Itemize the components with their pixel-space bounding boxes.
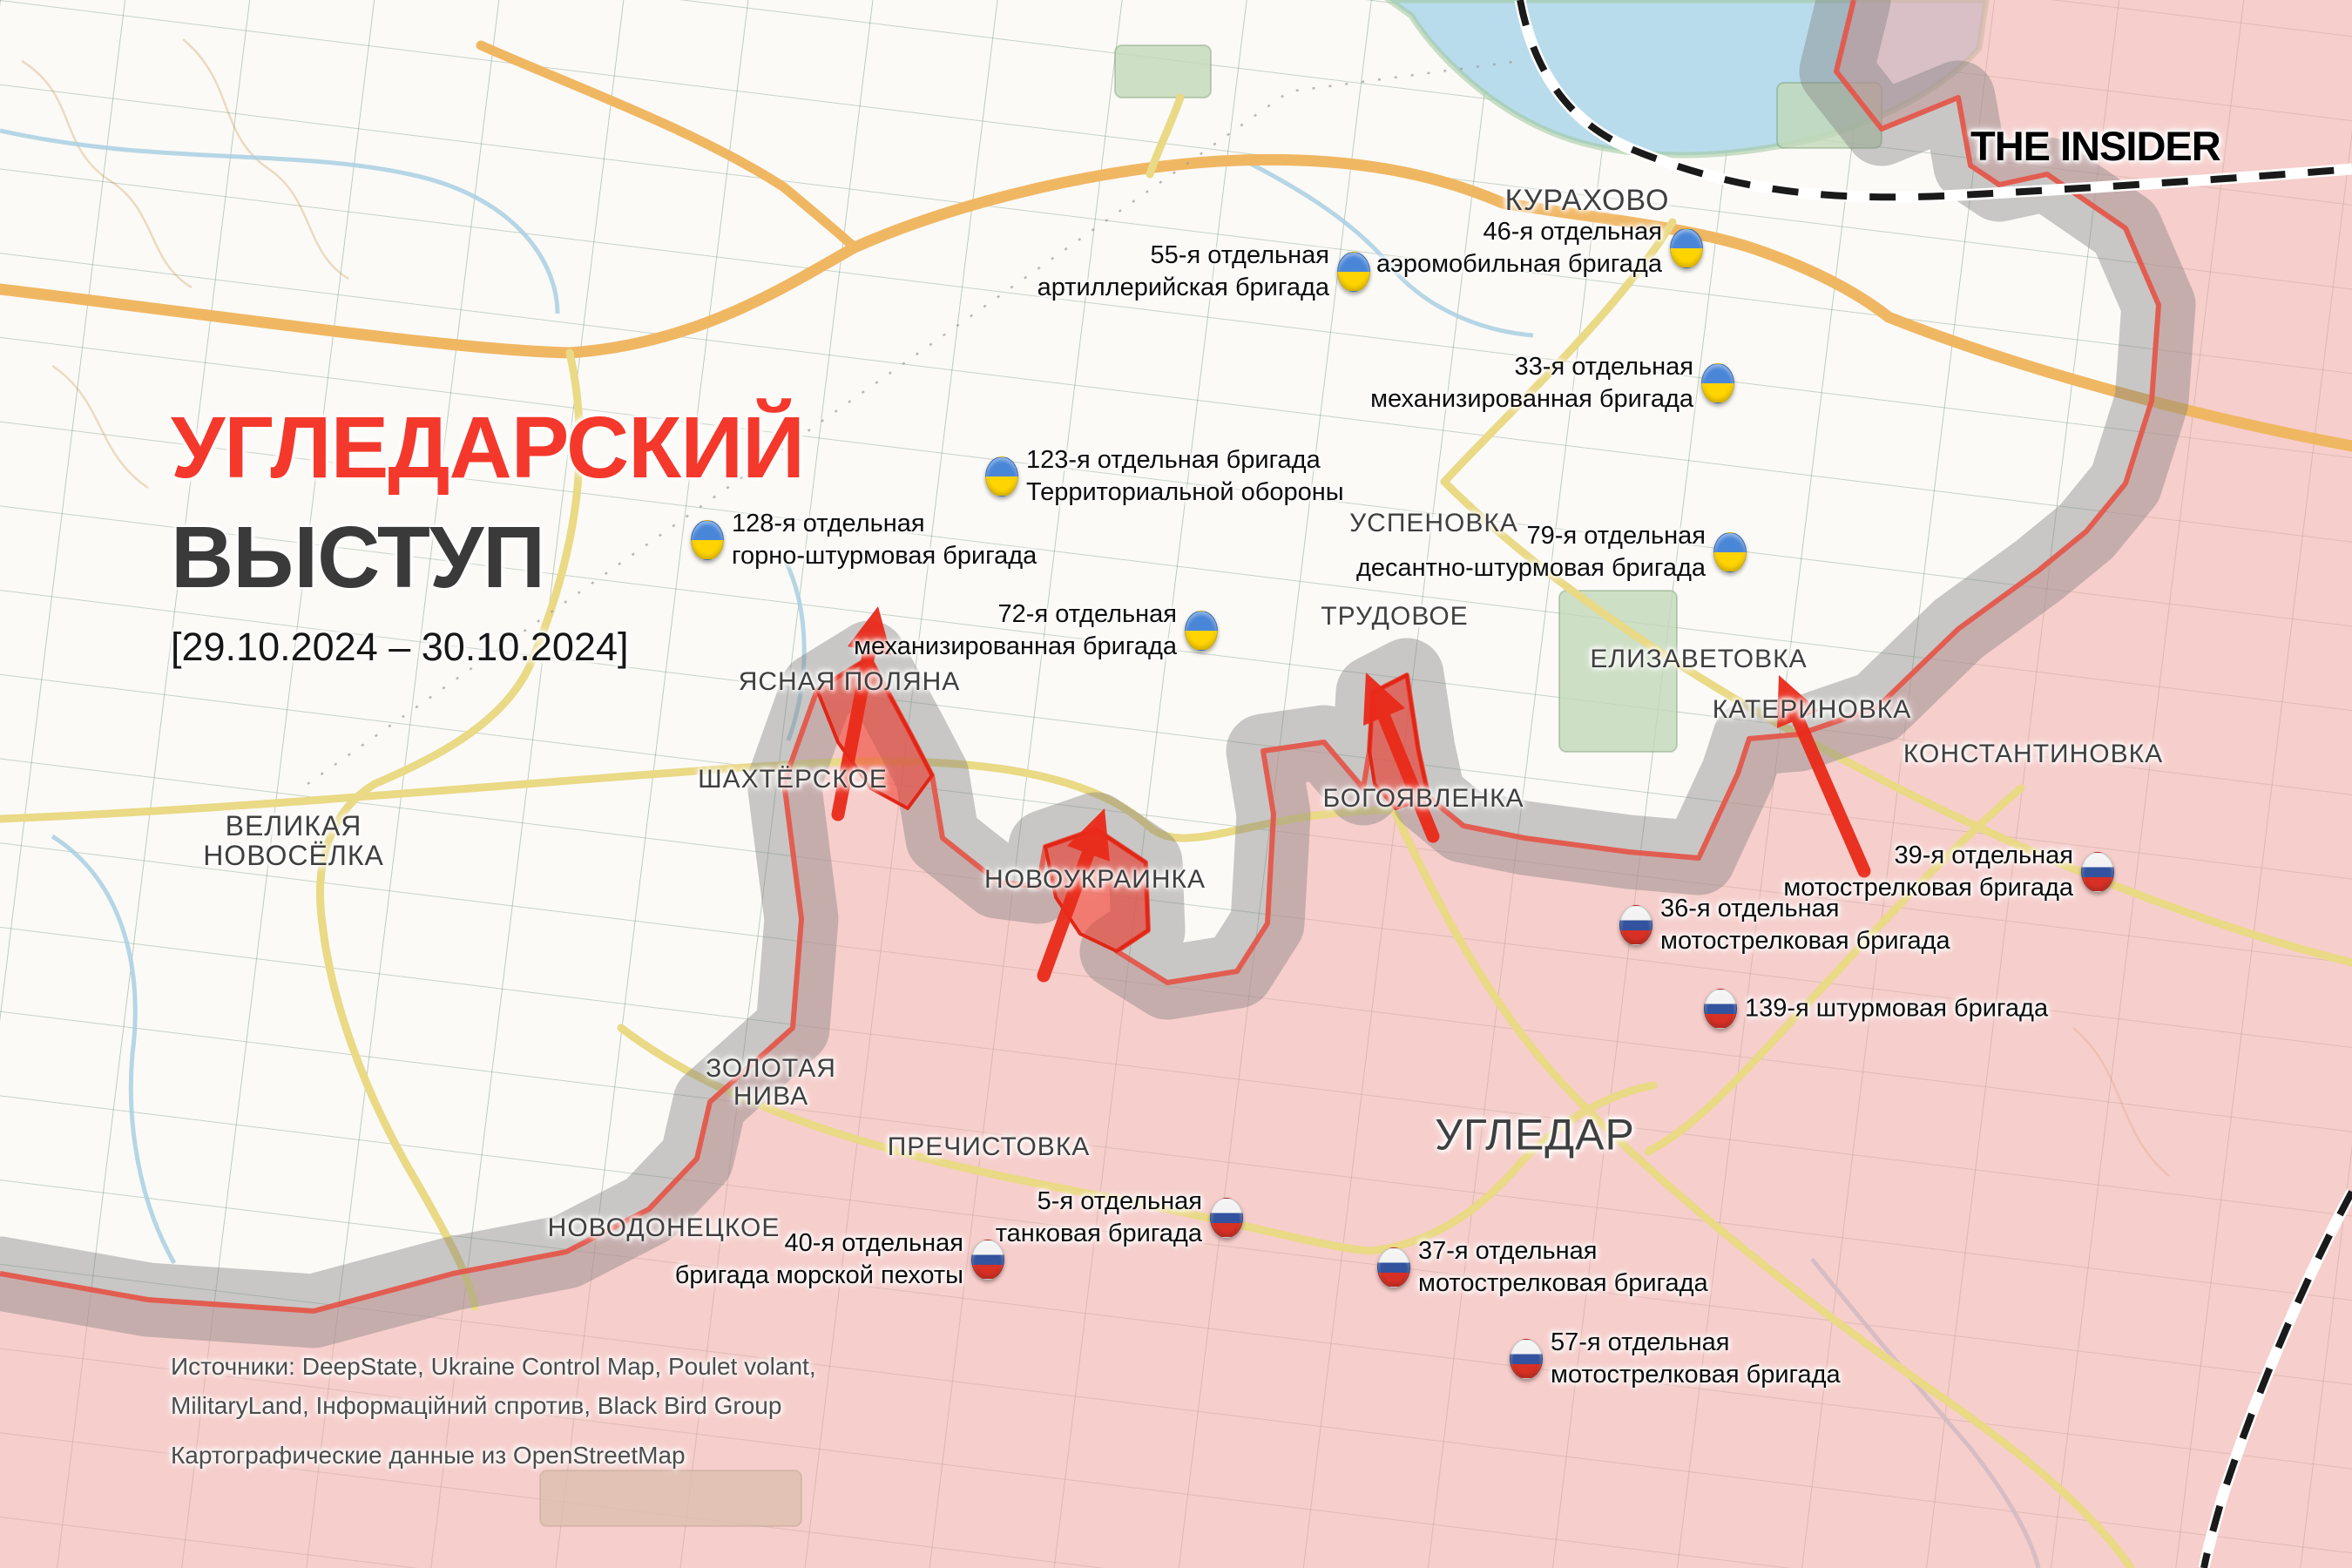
ukraine-flag-marker <box>1701 363 1734 403</box>
city-label: ВЕЛИКАЯ НОВОСЁЛКА <box>203 812 384 871</box>
russia-flag-marker <box>1210 1198 1243 1238</box>
ua-brigade-label: 128-я отдельнаягорно-штурмовая бригада <box>732 508 1037 572</box>
city-label: КУРАХОВО <box>1505 185 1670 216</box>
brigade-label-line: десантно-штурмовая бригада <box>1356 552 1706 585</box>
sources-note: Источники: DeepState, Ukraine Control Ma… <box>171 1347 816 1475</box>
ru-brigade-label: 40-я отдельнаябригада морской пехоты <box>675 1227 963 1292</box>
brigade-label-line: 57-я отдельная <box>1551 1327 1841 1359</box>
ua-brigade-label: 123-я отдельная бригадаТерриториальной о… <box>1026 444 1344 509</box>
title-line-1: УГЛЕДАРСКИЙ <box>171 402 804 493</box>
annotations-layer: УГЛЕДАРСКИЙ ВЫСТУП [29.10.2024 – 30.10.2… <box>0 0 2352 1568</box>
city-label: ПРЕЧИСТОВКА <box>888 1133 1091 1161</box>
russia-flag-marker <box>1510 1339 1543 1379</box>
brigade-label-line: механизированная бригада <box>1370 383 1693 416</box>
ukraine-flag-marker <box>985 456 1018 497</box>
ru-brigade-label: 5-я отдельнаятанковая бригада <box>996 1186 1202 1250</box>
ua-brigade-label: 46-я отдельнаяаэромобильная бригада <box>1376 216 1662 280</box>
brigade-label-line: 33-я отдельная <box>1370 351 1693 383</box>
city-label: КАТЕРИНОВКА <box>1713 696 1912 724</box>
city-label: БОГОЯВЛЕНКА <box>1322 785 1524 813</box>
ukraine-flag-marker <box>1185 611 1218 651</box>
brigade-label-line: танковая бригада <box>996 1218 1202 1250</box>
brigade-label-line: 40-я отдельная <box>675 1227 963 1260</box>
war-map: УГЛЕДАРСКИЙ ВЫСТУП [29.10.2024 – 30.10.2… <box>0 0 2352 1568</box>
brigade-label-line: 37-я отдельная <box>1418 1235 1708 1267</box>
brigade-label-line: бригада морской пехоты <box>675 1260 963 1292</box>
ru-brigade-label: 37-я отдельнаямотострелковая бригада <box>1418 1235 1708 1300</box>
brigade-label-line: горно-штурмовая бригада <box>732 540 1037 572</box>
city-label: ТРУДОВОЕ <box>1321 603 1468 631</box>
russia-flag-marker <box>2081 852 2114 892</box>
brigade-label-line: 123-я отдельная бригада <box>1026 444 1344 476</box>
city-label: КОНСТАНТИНОВКА <box>1903 740 2163 768</box>
title-date-range: [29.10.2024 – 30.10.2024] <box>171 625 804 669</box>
brigade-label-line: мотострелковая бригада <box>1418 1267 1708 1300</box>
ua-brigade-label: 33-я отдельнаямеханизированная бригада <box>1370 351 1693 416</box>
sources-line-2: MilitaryLand, Інформаційний спротив, Bla… <box>171 1386 816 1425</box>
ua-brigade-label: 55-я отдельнаяартиллерийская бригада <box>1037 240 1329 304</box>
ukraine-flag-marker <box>1337 252 1370 292</box>
brigade-label-line: мотострелковая бригада <box>1551 1359 1841 1391</box>
ukraine-flag-marker <box>691 520 724 560</box>
the-insider-logo: THE INSIDER <box>1970 122 2220 170</box>
brigade-label-line: аэромобильная бригада <box>1376 248 1662 280</box>
sources-line-3: Картографические данные из OpenStreetMap <box>171 1436 816 1475</box>
ua-brigade-label: 72-я отдельнаямеханизированная бригада <box>854 598 1177 663</box>
brigade-label-line: 139-я штурмовая бригада <box>1745 993 2048 1025</box>
city-label: ШАХТЁРСКОЕ <box>698 766 888 794</box>
city-label: НОВОУКРАИНКА <box>984 866 1206 894</box>
city-label: ЯСНАЯ ПОЛЯНА <box>739 668 961 696</box>
brigade-label-line: 79-я отдельная <box>1356 520 1706 552</box>
ru-brigade-label: 36-я отдельнаямотострелковая бригада <box>1660 893 1950 957</box>
russia-flag-marker <box>1704 989 1737 1029</box>
ua-brigade-label: 79-я отдельнаядесантно-штурмовая бригада <box>1356 520 1706 585</box>
ukraine-flag-marker <box>1670 228 1703 268</box>
brigade-label-line: 72-я отдельная <box>854 598 1177 631</box>
ru-brigade-label: 57-я отдельнаямотострелковая бригада <box>1551 1327 1841 1391</box>
brigade-label-line: 128-я отдельная <box>732 508 1037 540</box>
russia-flag-marker <box>971 1240 1004 1280</box>
brigade-label-line: 39-я отдельная <box>1783 840 2073 872</box>
brigade-label-line: 5-я отдельная <box>996 1186 1202 1218</box>
city-label: ЕЛИЗАВЕТОВКА <box>1590 645 1807 673</box>
russia-flag-marker <box>1619 905 1652 945</box>
brigade-label-line: 36-я отдельная <box>1660 893 1950 925</box>
sources-line-1: Источники: DeepState, Ukraine Control Ma… <box>171 1347 816 1386</box>
brigade-label-line: мотострелковая бригада <box>1660 925 1950 957</box>
brigade-label-line: артиллерийская бригада <box>1037 272 1329 304</box>
ru-brigade-label: 139-я штурмовая бригада <box>1745 993 2048 1025</box>
city-label: УГЛЕДАР <box>1435 1112 1635 1159</box>
russia-flag-marker <box>1377 1247 1410 1288</box>
ukraine-flag-marker <box>1713 532 1747 572</box>
brigade-label-line: механизированная бригада <box>854 631 1177 663</box>
city-label: ЗОЛОТАЯ НИВА <box>706 1055 836 1111</box>
brigade-label-line: 55-я отдельная <box>1037 240 1329 272</box>
brigade-label-line: 46-я отдельная <box>1376 216 1662 248</box>
brigade-label-line: Территориальной обороны <box>1026 476 1344 509</box>
